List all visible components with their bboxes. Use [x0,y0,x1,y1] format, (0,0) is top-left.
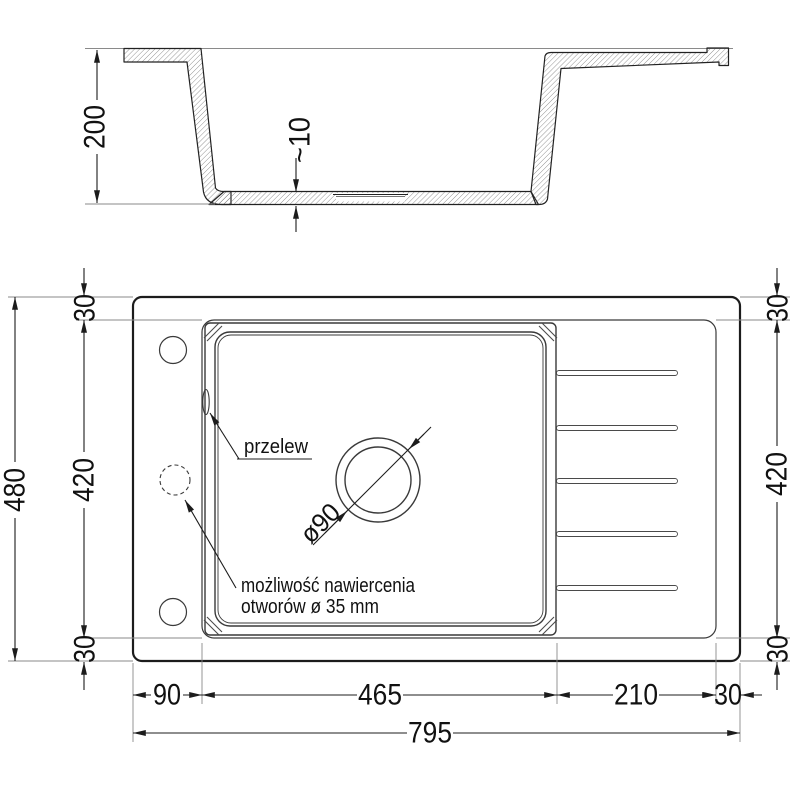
dim-bottom-thickness: ~10 [284,117,317,232]
dim-795-label: 795 [408,717,452,750]
overflow-label: przelew [244,436,309,458]
overflow-annotation: przelew [210,413,312,459]
faucet-hole [160,337,187,364]
dim-30-top-right-label: 30 [762,294,795,322]
dim-30-bottom-right-label: 30 [762,635,795,663]
section-view: 200 ~10 [79,48,734,232]
dim-420-left-label: 420 [68,458,101,502]
drain: ø90 [294,427,431,549]
groove-2 [557,426,678,431]
drain-diameter-label: ø90 [294,497,346,549]
plan-view: ø90 przelew możliwość nawiercenia otworó… [0,268,795,750]
dim-210-label: 210 [614,679,658,712]
drill-holes-annotation: możliwość nawiercenia otworów ø 35 mm [185,500,416,618]
groove-3 [557,479,678,484]
dim-30-bottom-label: 30 [714,679,742,712]
dim-90-label: 90 [153,679,181,712]
dim-30-top-left-label: 30 [69,294,102,322]
groove-4 [557,532,678,537]
drainboard-grooves [557,371,678,591]
drawing-canvas: 200 ~10 [0,0,800,800]
section-right-wall-drainboard [531,48,729,205]
dim-465-label: 465 [358,679,402,712]
dims-left: 480 30 420 30 [0,268,102,690]
drill-note-line2: otworów ø 35 mm [241,596,379,618]
overflow-slot [203,390,209,415]
dim-30-bottom-left-label: 30 [69,635,102,663]
second-hole [160,599,187,626]
dim-200-label: 200 [79,105,112,149]
dim-10-label: ~10 [284,117,317,163]
groove-5 [557,586,678,591]
drill-note-line1: możliwość nawiercenia [241,575,416,597]
technical-drawing-sink: 200 ~10 [0,0,800,800]
dims-bottom: 90 465 210 30 795 [133,679,762,750]
extension-lines [8,297,790,742]
dim-420-right-label: 420 [761,452,794,496]
dims-right: 30 420 30 [761,268,795,690]
groove-1 [557,371,678,376]
optional-hole-dashed [160,465,190,495]
dim-480-label: 480 [0,468,32,512]
section-left-wall [124,49,231,205]
